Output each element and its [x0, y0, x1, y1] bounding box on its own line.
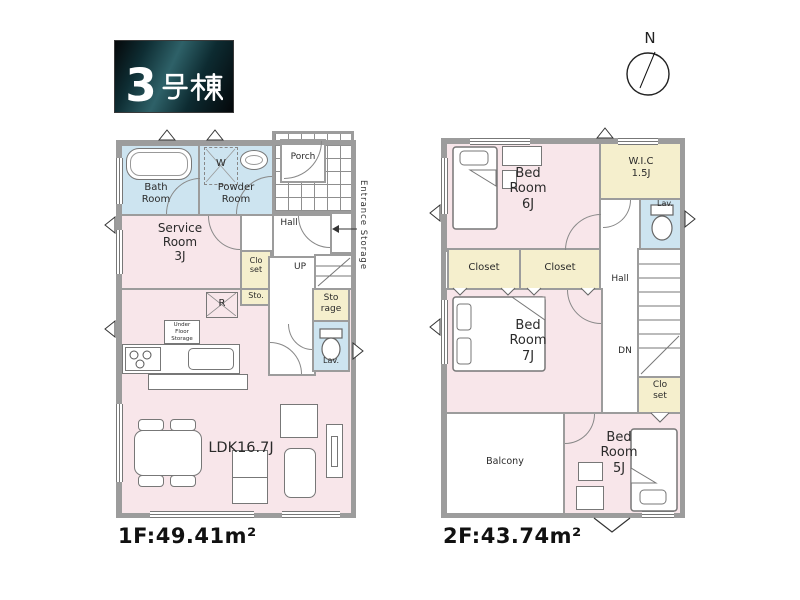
window: [441, 300, 448, 364]
window: [116, 158, 123, 204]
closet-2f-a-label: Closet: [449, 262, 519, 274]
compass: N: [616, 26, 680, 102]
balcony-label: Balcony: [462, 456, 548, 467]
powder-sink: [240, 150, 268, 170]
floorplan-canvas: 3 N: [0, 0, 800, 600]
sofa-cushion-line: [233, 477, 267, 478]
dining-chair: [138, 475, 164, 487]
kitchen-sink: [188, 348, 234, 370]
bathtub-inner: [130, 152, 188, 176]
vent-arrow-up: [596, 127, 614, 139]
bathtub: [126, 148, 192, 180]
stairs-down-treads: [639, 250, 681, 376]
building-number: 3: [125, 69, 156, 103]
stairs-up-treads: [316, 256, 352, 288]
sofa: [232, 450, 268, 504]
kitchen-island-counter: [148, 374, 248, 390]
hall-2f: [599, 198, 641, 414]
storage-1f-label: Sto rage: [316, 293, 346, 314]
powder-sink-basin: [245, 155, 263, 165]
entrance-storage-label: Entrance Storage: [358, 180, 368, 276]
bifold-door-chevron: [500, 287, 516, 296]
refrigerator-label: R: [206, 298, 238, 310]
window: [282, 511, 340, 518]
bed-room-7j-label: Bed Room 7J: [492, 318, 564, 364]
stairs-1f: [314, 254, 354, 290]
wic-label: W.I.C 1.5J: [611, 156, 671, 180]
vent-arrow-up: [158, 129, 176, 141]
up-label: UP: [288, 262, 312, 273]
window: [116, 230, 123, 274]
bed-room-5j-label: Bed Room 5J: [584, 430, 654, 476]
vent-arrow-left: [429, 204, 441, 222]
bifold-door-chevron: [650, 412, 670, 423]
building-badge: 3: [114, 40, 234, 113]
stove: [125, 347, 161, 371]
floor2-area-label: 2F:43.74m²: [443, 524, 582, 548]
vent-arrow-right: [684, 210, 696, 228]
under-floor-storage-label: Under Floor Storage: [164, 322, 200, 343]
hall-2f-label: Hall: [602, 274, 638, 285]
powder-room-label: Powder Room: [202, 182, 270, 206]
vent-arrow-down: [592, 516, 632, 534]
washer-label: W: [204, 158, 238, 170]
toilet-2f-icon: [648, 204, 676, 244]
closet-1f-label: Clo set: [243, 256, 269, 275]
low-table: [280, 404, 318, 438]
window: [150, 511, 254, 518]
closet-2f-b-label: Closet: [521, 262, 599, 274]
bed-room-6j-label: Bed Room 6J: [492, 166, 564, 212]
porch-label: Porch: [283, 152, 323, 163]
service-room-label: Service Room 3J: [138, 221, 222, 263]
window: [470, 138, 530, 145]
window: [116, 404, 123, 482]
tv-stand: [326, 424, 343, 478]
dining-table: [134, 430, 202, 476]
coffee-table: [284, 448, 316, 498]
desk-5j: [576, 486, 604, 510]
vent-arrow-right: [352, 342, 364, 360]
bifold-door-chevron: [452, 287, 468, 296]
bath-room-label: Bath Room: [126, 182, 186, 206]
building-suffix-kanji-glyph: [161, 71, 223, 103]
lav-1f-label: Lav.: [314, 356, 348, 365]
entrance-storage-arrow: [332, 224, 358, 234]
window: [441, 158, 448, 214]
compass-north-label: N: [644, 29, 655, 47]
vent-arrow-up: [206, 129, 224, 141]
hall-1f-label: Hall: [274, 218, 304, 229]
closet-2f-small-label: Clo set: [641, 380, 679, 401]
sto-1f-label: Sto.: [242, 291, 270, 300]
window: [618, 138, 658, 145]
bifold-door-chevron: [580, 287, 596, 296]
desk-6j: [502, 146, 542, 166]
compass-circle: [627, 53, 669, 95]
vent-arrow-left: [429, 318, 441, 336]
window: [642, 511, 674, 518]
floor1-area-label: 1F:49.41m²: [118, 524, 257, 548]
dining-chair: [170, 475, 196, 487]
lav-2f-label: Lav.: [650, 199, 680, 208]
bifold-door-chevron: [526, 287, 542, 296]
vent-arrow-left: [104, 216, 116, 234]
ldk-label: LDK16.7J: [196, 440, 286, 457]
stairs-2f: [637, 248, 683, 378]
vent-arrow-left: [104, 320, 116, 338]
tv: [331, 436, 338, 467]
dn-label: DN: [612, 346, 638, 357]
